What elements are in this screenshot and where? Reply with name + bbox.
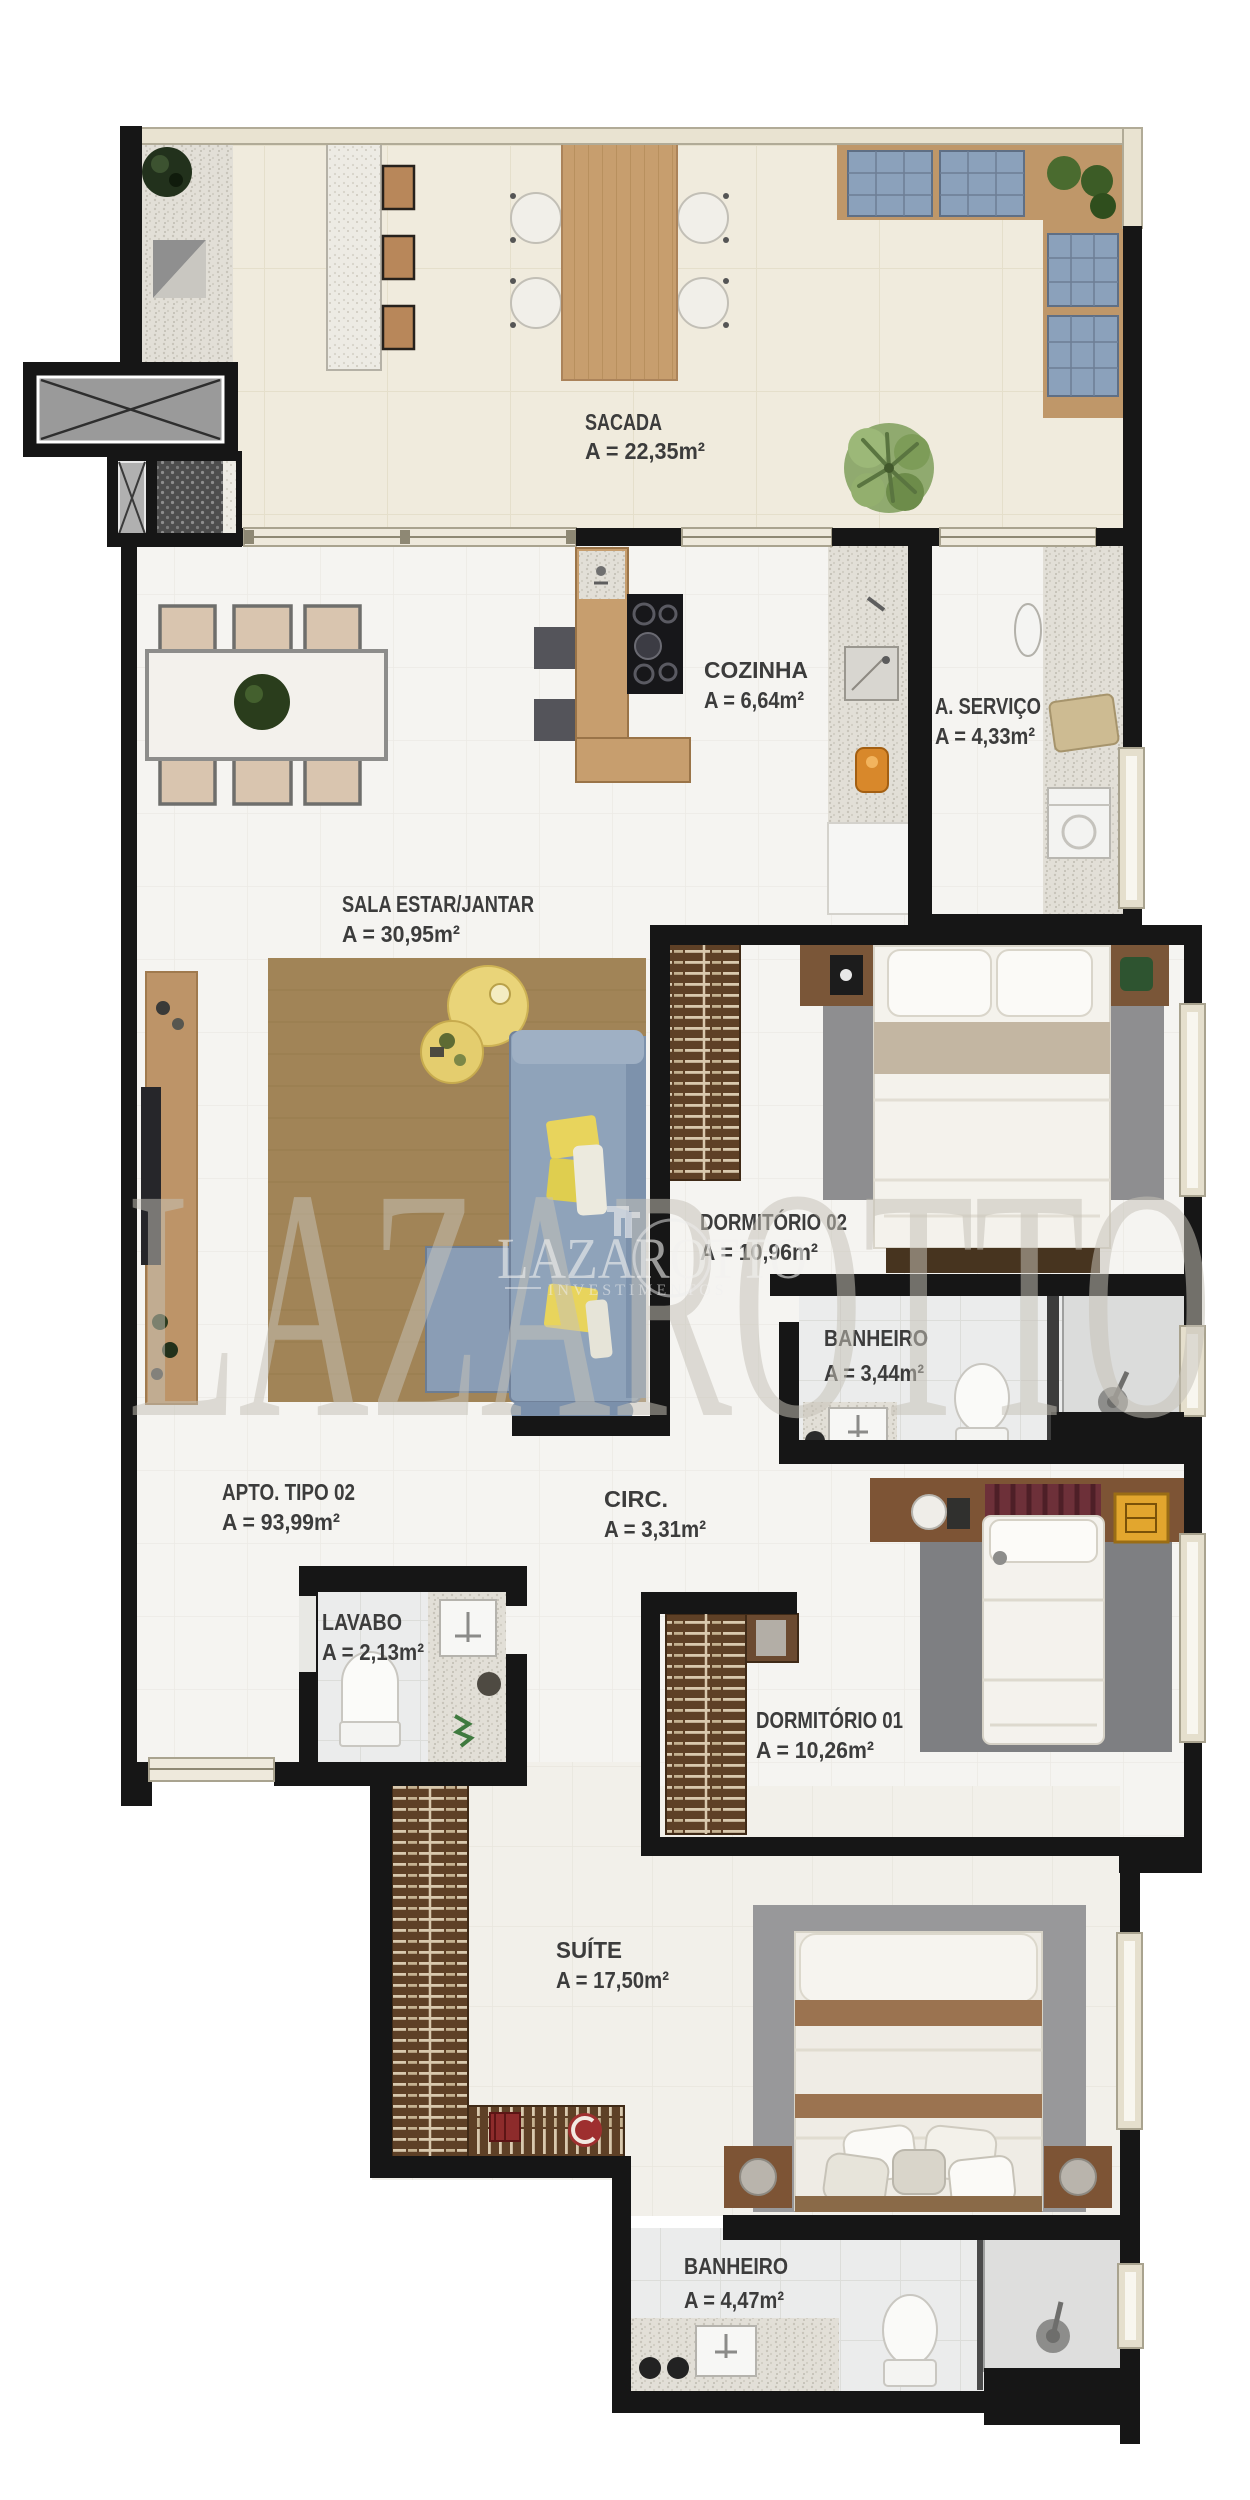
- svg-text:A = 4,33m²: A = 4,33m²: [935, 723, 1035, 749]
- svg-text:SACADA: SACADA: [585, 409, 662, 435]
- svg-text:A = 3,31m²: A = 3,31m²: [604, 1516, 706, 1542]
- svg-text:SUÍTE: SUÍTE: [556, 1936, 622, 1963]
- svg-text:SALA ESTAR/JANTAR: SALA ESTAR/JANTAR: [342, 891, 534, 917]
- svg-text:A = 93,99m²: A = 93,99m²: [222, 1509, 340, 1535]
- svg-text:A = 2,13m²: A = 2,13m²: [322, 1639, 424, 1665]
- svg-text:LAZAROTTO: LAZAROTTO: [128, 1122, 1213, 1487]
- svg-text:A = 17,50m²: A = 17,50m²: [556, 1967, 669, 1993]
- svg-text:LAVABO: LAVABO: [322, 1609, 402, 1635]
- svg-text:COZINHA: COZINHA: [704, 657, 808, 683]
- svg-text:BANHEIRO: BANHEIRO: [684, 2253, 788, 2279]
- svg-text:A = 30,95m²: A = 30,95m²: [342, 921, 460, 947]
- svg-text:A. SERVIÇO: A. SERVIÇO: [935, 693, 1041, 719]
- svg-text:A = 6,64m²: A = 6,64m²: [704, 687, 804, 713]
- svg-text:DORMITÓRIO 01: DORMITÓRIO 01: [756, 1706, 903, 1733]
- svg-text:A = 4,47m²: A = 4,47m²: [684, 2287, 784, 2313]
- svg-text:A = 10,26m²: A = 10,26m²: [756, 1737, 874, 1763]
- svg-text:A = 22,35m²: A = 22,35m²: [585, 438, 705, 464]
- svg-text:CIRC.: CIRC.: [604, 1486, 668, 1512]
